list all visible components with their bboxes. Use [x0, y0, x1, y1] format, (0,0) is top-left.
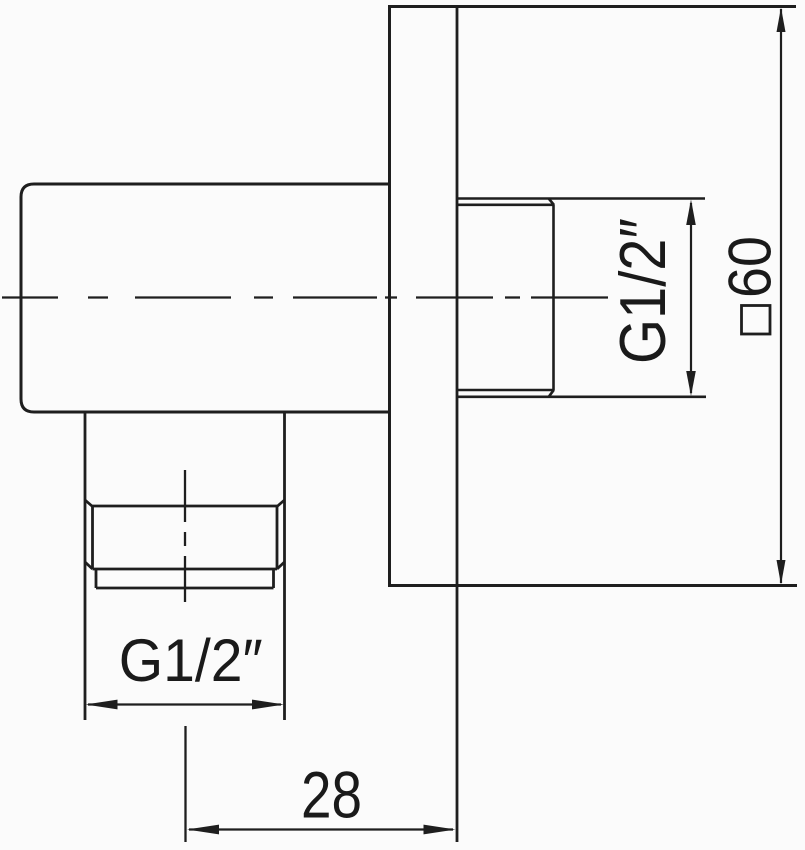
svg-text:G1/2″: G1/2″: [119, 627, 263, 694]
svg-text:60: 60: [716, 236, 783, 298]
svg-text:28: 28: [301, 758, 362, 832]
svg-text:G1/2″: G1/2″: [606, 218, 679, 364]
